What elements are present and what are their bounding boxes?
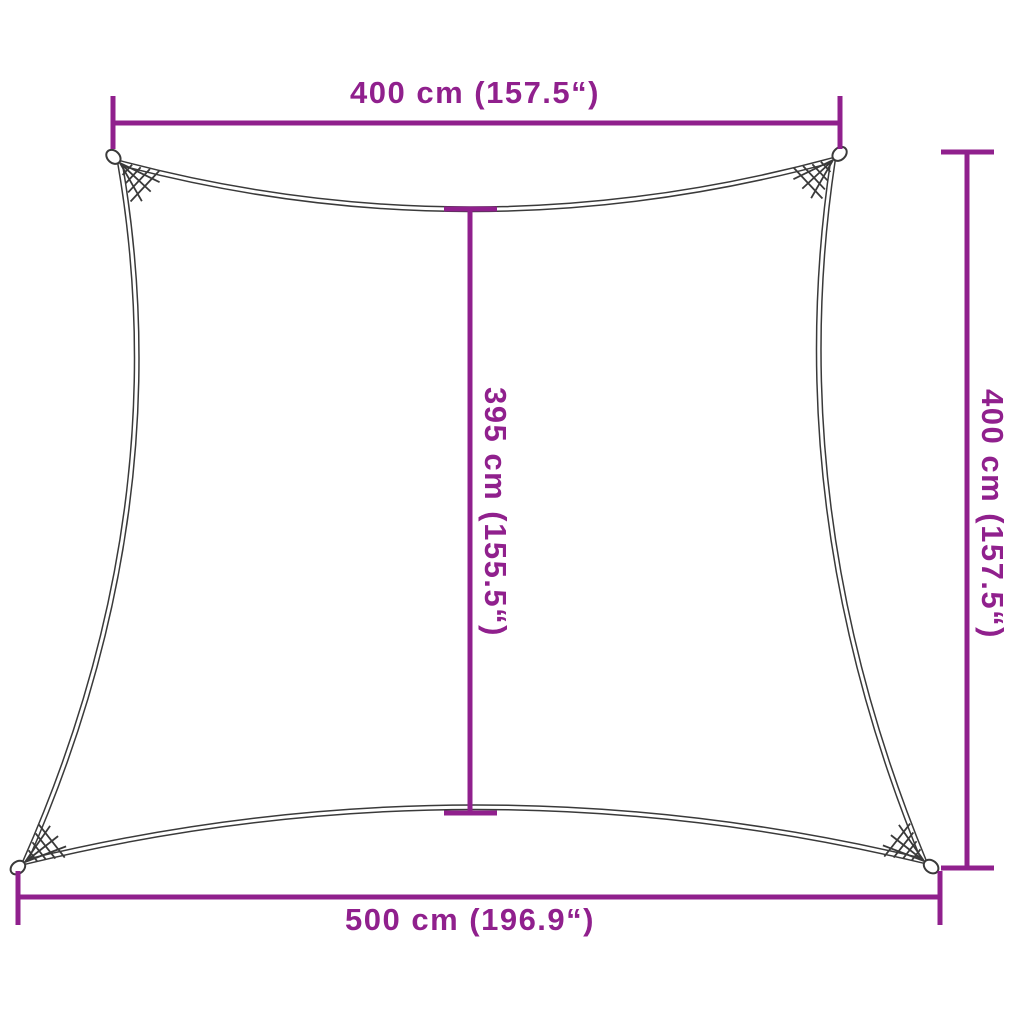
top-dimension-label: 400 cm (157.5“) xyxy=(350,76,600,110)
middle-dimension-label: 395 cm (155.5“) xyxy=(478,387,512,637)
bottom-dimension-label: 500 cm (196.9“) xyxy=(345,903,595,937)
right-dimension-label: 400 cm (157.5“) xyxy=(975,389,1009,639)
sail-outline-outer xyxy=(25,160,924,862)
sail-shape xyxy=(25,160,924,862)
dimension-diagram: 400 cm (157.5“) 400 cm (157.5“) 395 cm (… xyxy=(0,0,1024,1024)
